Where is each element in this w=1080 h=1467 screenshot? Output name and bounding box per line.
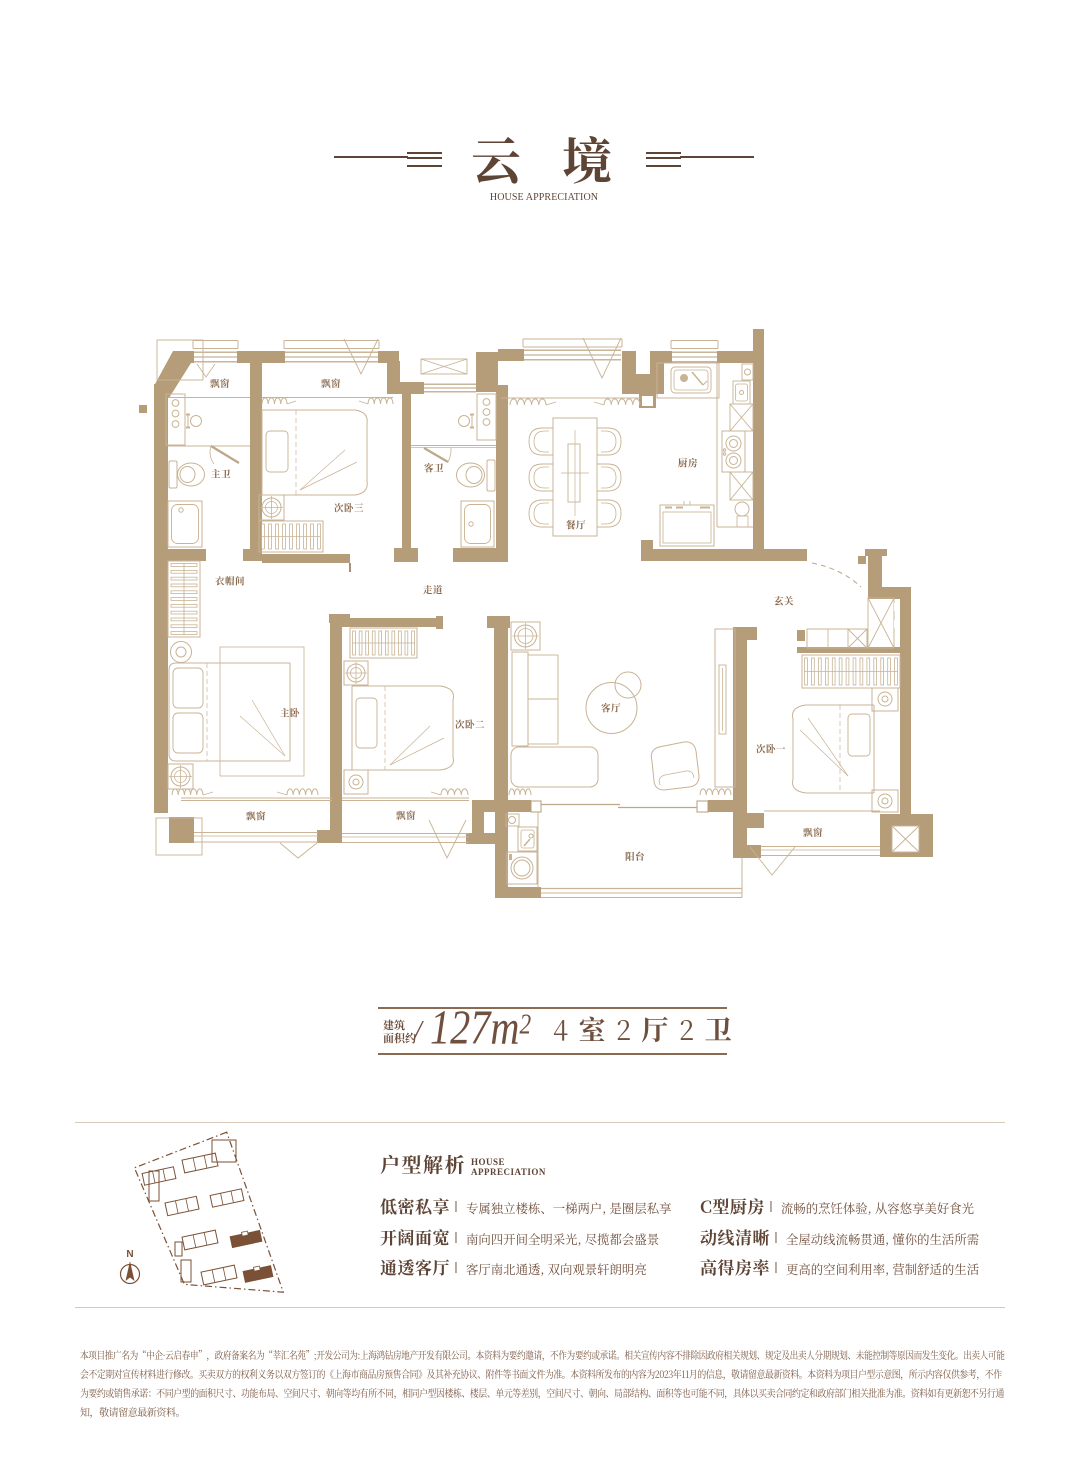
svg-text:飘窗: 飘窗 [803,825,823,839]
svg-text:飘窗: 飘窗 [210,376,230,390]
svg-text:N: N [126,1249,133,1260]
svg-text:餐厅: 餐厅 [566,518,586,532]
svg-text:飘窗: 飘窗 [396,808,416,822]
svg-text:玄关: 玄关 [774,594,794,608]
svg-text:飘窗: 飘窗 [246,809,266,823]
svg-text:飘窗: 飘窗 [321,376,341,390]
svg-text:主卫: 主卫 [211,467,231,481]
svg-text:厨房: 厨房 [678,456,698,470]
svg-text:次卧一: 次卧一 [756,742,786,756]
svg-text:走道: 走道 [423,583,443,597]
svg-text:衣帽间: 衣帽间 [215,574,245,588]
svg-text:阳台: 阳台 [625,849,645,863]
svg-text:主卧: 主卧 [280,706,301,720]
svg-text:次卧二: 次卧二 [455,717,485,731]
svg-text:次卧三: 次卧三 [334,501,364,515]
svg-text:客厅: 客厅 [601,701,621,715]
svg-text:客卫: 客卫 [424,461,444,475]
